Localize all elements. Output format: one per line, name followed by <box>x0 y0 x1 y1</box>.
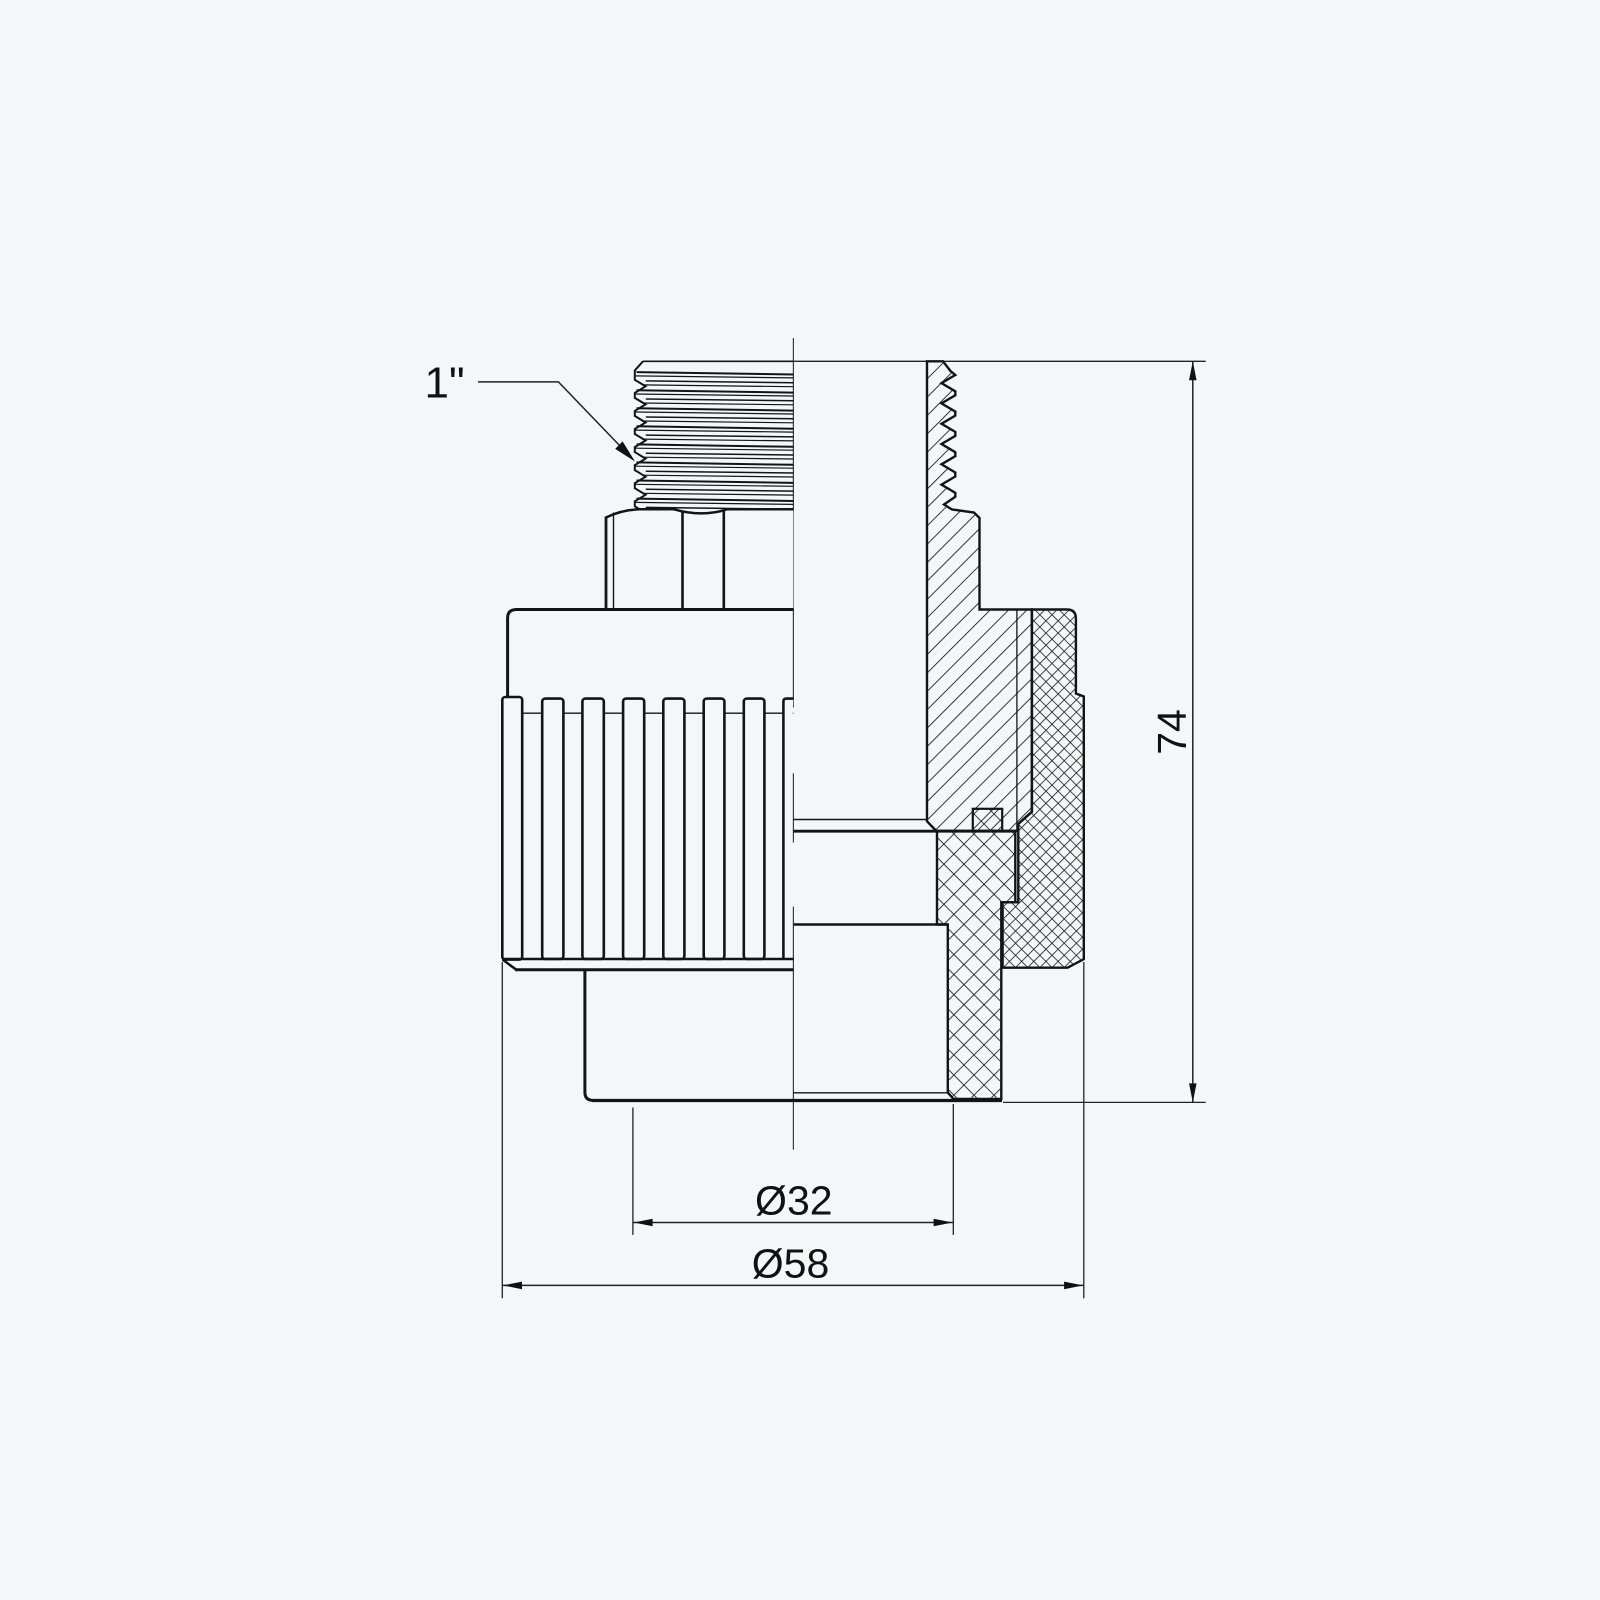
svg-text:Ø32: Ø32 <box>755 1178 833 1224</box>
svg-text:Ø58: Ø58 <box>752 1240 830 1286</box>
svg-text:74: 74 <box>1149 709 1195 755</box>
svg-text:1": 1" <box>425 358 465 407</box>
